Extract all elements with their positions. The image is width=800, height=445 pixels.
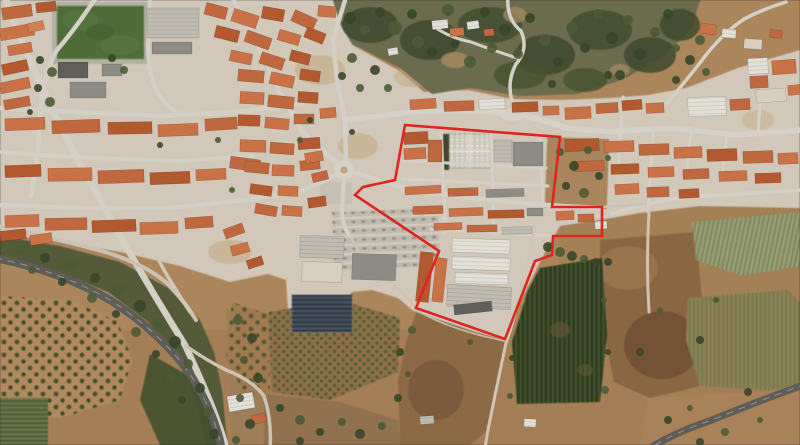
building [150, 171, 190, 184]
tree [276, 404, 284, 412]
building [70, 82, 106, 98]
tree [344, 12, 356, 24]
building [58, 62, 88, 78]
tree [567, 251, 577, 261]
building [556, 211, 574, 221]
tree [87, 293, 97, 303]
building [527, 208, 543, 216]
building [778, 153, 798, 165]
tree [356, 84, 364, 92]
tree [28, 266, 36, 274]
tree [195, 383, 205, 393]
building [244, 161, 269, 174]
tree [209, 429, 219, 439]
building [484, 29, 495, 37]
tree [166, 374, 174, 382]
tree [375, 7, 385, 17]
tree [593, 9, 603, 19]
tree [606, 32, 618, 44]
building [707, 148, 737, 161]
building [611, 164, 639, 175]
tree [378, 422, 386, 430]
building [770, 29, 783, 38]
building [543, 106, 559, 116]
roof-ribs [420, 416, 435, 425]
tree [215, 137, 221, 143]
building [318, 5, 337, 18]
building [683, 169, 709, 180]
tree [584, 146, 592, 154]
tree [40, 253, 50, 263]
tree [338, 418, 346, 426]
tree [744, 388, 752, 396]
building [788, 84, 800, 95]
tree [513, 49, 523, 59]
building [352, 253, 397, 281]
tree [131, 327, 141, 337]
building [158, 123, 198, 136]
building [5, 164, 41, 177]
tree [157, 142, 163, 148]
tree [539, 34, 551, 46]
tree [295, 415, 305, 425]
tree [499, 24, 511, 36]
roundabout-island [340, 166, 348, 174]
building [486, 188, 524, 197]
tree [388, 21, 402, 35]
building [413, 205, 443, 214]
tree [355, 429, 365, 439]
aerial-imagery [0, 0, 800, 445]
building [272, 165, 294, 177]
roof-ribs [479, 98, 505, 109]
tree [34, 84, 42, 92]
tree [713, 297, 719, 303]
tree [451, 40, 459, 48]
soccer-field [52, 2, 148, 64]
tree [569, 161, 579, 171]
tree [347, 53, 357, 63]
building [565, 138, 599, 151]
building [512, 102, 538, 113]
building [405, 185, 441, 195]
building [5, 117, 45, 130]
tree [412, 36, 424, 48]
tree [467, 339, 473, 345]
tree [757, 417, 763, 423]
tree [405, 371, 411, 377]
building [719, 171, 747, 182]
building [565, 106, 592, 119]
tree [178, 396, 186, 404]
tree [663, 9, 673, 19]
building [674, 147, 702, 159]
tree [553, 57, 563, 67]
tree [650, 27, 660, 37]
roof-ribs [452, 256, 510, 271]
tree [636, 348, 644, 356]
building [140, 221, 178, 234]
tree [702, 68, 710, 76]
building [578, 214, 594, 223]
roof-ribs [494, 140, 512, 162]
tree [525, 13, 535, 23]
building [205, 117, 238, 131]
building [756, 88, 787, 103]
tree [58, 278, 66, 286]
tree [595, 172, 603, 180]
building [639, 143, 669, 155]
roof-ribs [524, 419, 537, 428]
tree [566, 22, 578, 34]
building [743, 150, 773, 163]
tree [307, 117, 313, 123]
tree [152, 350, 160, 358]
building [428, 140, 442, 162]
building [265, 117, 290, 130]
building [240, 91, 265, 104]
tree [360, 25, 370, 35]
building [513, 142, 543, 166]
building [267, 95, 294, 110]
building [467, 225, 497, 233]
building [404, 131, 429, 144]
tree [442, 4, 454, 16]
building [744, 38, 763, 49]
tree [232, 436, 240, 444]
building [238, 69, 265, 83]
building [282, 205, 303, 216]
tree [338, 72, 346, 80]
building [450, 28, 465, 37]
tree [408, 326, 416, 334]
tree [247, 333, 257, 343]
tree [605, 155, 611, 161]
roof-ribs [455, 272, 508, 285]
building [5, 214, 39, 227]
tree [509, 355, 515, 361]
tree [721, 428, 729, 436]
tree [349, 129, 355, 135]
solar-panel-array [292, 295, 352, 332]
tree [384, 84, 392, 92]
tree [427, 47, 437, 57]
building [648, 167, 674, 178]
tree [672, 44, 680, 52]
tree [27, 109, 33, 115]
building [647, 187, 669, 198]
tree [183, 359, 193, 369]
building [699, 23, 716, 35]
tree [605, 349, 611, 355]
tree [297, 137, 303, 143]
tree [685, 55, 695, 65]
tree [108, 54, 116, 62]
tree [245, 419, 255, 429]
tree [45, 97, 55, 107]
roof-ribs [300, 235, 345, 259]
tree [134, 300, 146, 312]
building [730, 98, 751, 110]
building [604, 140, 634, 152]
tree [203, 407, 213, 417]
building [48, 168, 92, 182]
tree [604, 71, 612, 79]
tree [169, 336, 181, 348]
building [404, 147, 427, 159]
roof-ribs [467, 20, 480, 30]
tree [112, 284, 124, 296]
tree [487, 43, 497, 53]
tree [253, 373, 263, 383]
tree [240, 356, 248, 364]
roof-ribs [452, 238, 510, 254]
building [240, 140, 266, 153]
building [92, 219, 136, 233]
tree [562, 182, 570, 190]
tree [580, 43, 590, 53]
street [648, 212, 650, 312]
tree [47, 67, 57, 77]
roof-ribs [432, 19, 449, 30]
tree [480, 7, 490, 17]
tree [696, 336, 704, 344]
tree [64, 260, 76, 272]
tree [580, 255, 588, 263]
tree [601, 386, 609, 394]
tree [555, 247, 565, 257]
dirt-field-east [598, 232, 702, 398]
tree [623, 15, 633, 25]
tree [120, 66, 128, 74]
tree [296, 437, 304, 445]
building [298, 91, 319, 103]
building [488, 210, 524, 219]
tree [396, 348, 404, 356]
building [596, 102, 619, 114]
tree [153, 317, 163, 327]
building [679, 188, 699, 198]
roof-ribs [502, 227, 532, 235]
tree [664, 416, 672, 424]
tree [112, 310, 120, 318]
tree [229, 187, 235, 193]
building [646, 103, 664, 114]
tree [634, 48, 646, 60]
satellite-map [0, 0, 800, 445]
building [410, 98, 437, 110]
building [448, 187, 478, 196]
tree [370, 65, 380, 75]
building [307, 196, 326, 208]
tree [592, 258, 600, 266]
building [270, 142, 295, 155]
tree [233, 315, 243, 325]
building [772, 59, 797, 75]
building [238, 115, 260, 127]
building [102, 64, 122, 76]
building [444, 100, 474, 111]
building [45, 218, 87, 231]
tree [394, 394, 402, 402]
tree [464, 56, 476, 68]
building [196, 168, 227, 181]
building [615, 183, 639, 194]
tree [657, 307, 663, 313]
building [302, 261, 343, 282]
building [36, 1, 57, 13]
tree [615, 70, 625, 80]
roof-ribs [688, 96, 727, 116]
tree [604, 258, 612, 266]
roof-ribs [748, 57, 769, 74]
tree [601, 297, 607, 303]
roof-ribs [147, 8, 199, 38]
tree [90, 273, 100, 283]
tree [687, 405, 693, 411]
building [750, 76, 769, 89]
vineyard-corner [0, 398, 48, 445]
tree [579, 188, 589, 198]
building [98, 169, 144, 184]
tree [15, 245, 25, 255]
tree [695, 35, 705, 45]
building [434, 223, 462, 231]
tree [236, 394, 244, 402]
building [320, 107, 337, 118]
building [108, 122, 152, 135]
building [449, 207, 483, 216]
building [185, 216, 214, 229]
tree [507, 393, 513, 399]
tree [672, 76, 680, 84]
roof-ribs [722, 28, 737, 38]
building [755, 173, 781, 184]
building [278, 185, 298, 196]
tree [316, 428, 324, 436]
building [622, 99, 643, 110]
tree [586, 78, 594, 86]
tree [548, 80, 556, 88]
building [152, 42, 192, 54]
tree [407, 9, 417, 19]
building [52, 119, 100, 134]
tree [36, 56, 44, 64]
